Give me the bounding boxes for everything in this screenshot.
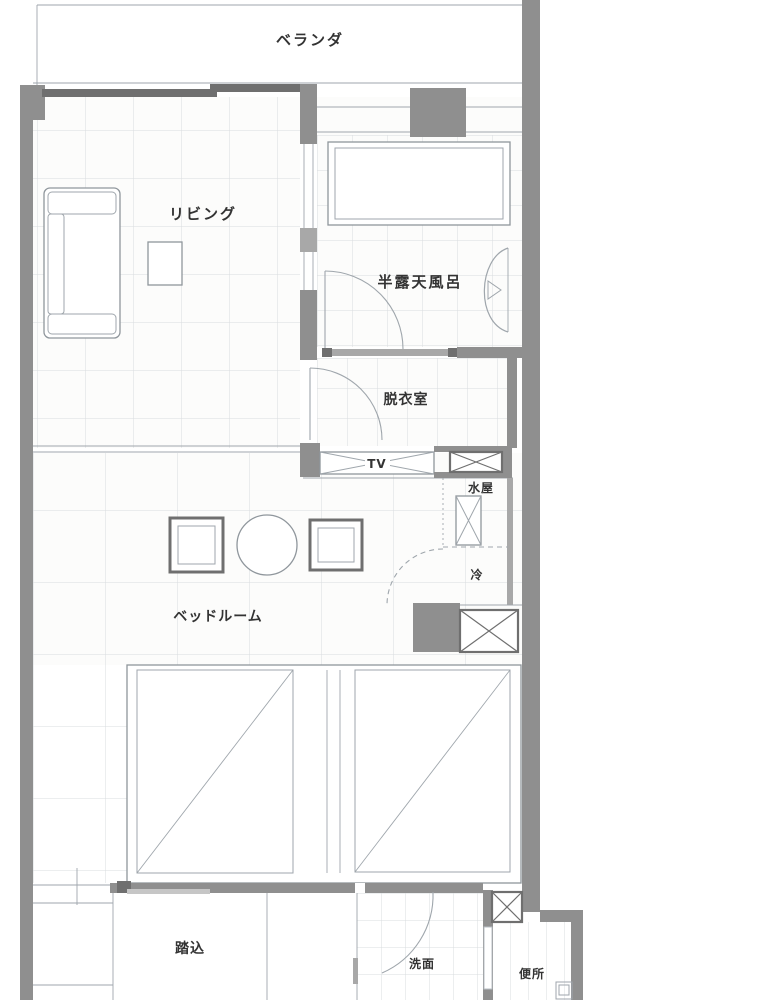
bedroom-grid-left-strip [33,665,127,883]
balcony: ベランダ [33,5,540,85]
floor-plan-page: ベランダ [0,0,771,1000]
room-label-kitchenette: 水屋 [468,480,494,495]
wall-se-jog-c [571,922,583,1000]
slider-track [332,349,448,356]
bath-north-wall-block [410,88,466,137]
washroom-west-post [353,958,358,984]
kitchenette-south-wall-block [413,603,460,652]
pier-bottom [300,290,317,360]
slider-cap-left [322,348,332,357]
round-table [237,515,297,575]
pier-mid [300,228,317,252]
wall-corner-nw [20,85,45,120]
tv-row: TV [300,443,513,478]
label-fridge: 冷 [470,567,483,582]
south-wall-jamb-gap [355,883,365,893]
room-label-toilet: 便所 [519,966,545,981]
room-label-entrance: 踏込 [175,940,205,957]
room-label-balcony: ベランダ [276,31,344,49]
bathtub [328,142,510,225]
tv-row-pier [300,443,320,477]
dressing-east-wall [507,358,517,448]
label-tv: TV [367,457,386,471]
room-label-washroom: 洗面 [409,956,435,971]
kitchenette-east-line [507,478,513,605]
bath-dressing-wall [322,347,523,358]
floor-plan-drawing: ベランダ [0,0,771,1000]
pier-top [300,84,317,144]
south-wall-slider-track [127,889,210,894]
window-sash-left [42,89,217,97]
room-label-bath: 半露天風呂 [377,273,462,291]
room-label-living: リビング [169,205,237,223]
bed-platform [127,665,521,883]
slider-cap-right [448,348,457,357]
wall-right [522,0,540,882]
wall-left [20,85,33,1000]
beds [127,665,521,883]
service-wall-east [502,446,512,478]
window-sash-right [210,84,305,92]
wall-se-jog-a [522,880,540,912]
side-table [148,242,182,285]
sofa-outline [44,188,120,338]
wall-se-jog-b [540,910,583,922]
living-bath-partition [300,84,317,360]
toilet-door-leaf [484,927,492,989]
washroom-grid [357,893,483,1000]
sofa [44,188,120,338]
bath-dressing-wall-east [457,347,523,358]
room-label-bedroom: ベッドルーム [173,609,263,625]
room-label-dressing: 脱衣室 [384,391,429,408]
living-window-sashes [42,84,305,97]
